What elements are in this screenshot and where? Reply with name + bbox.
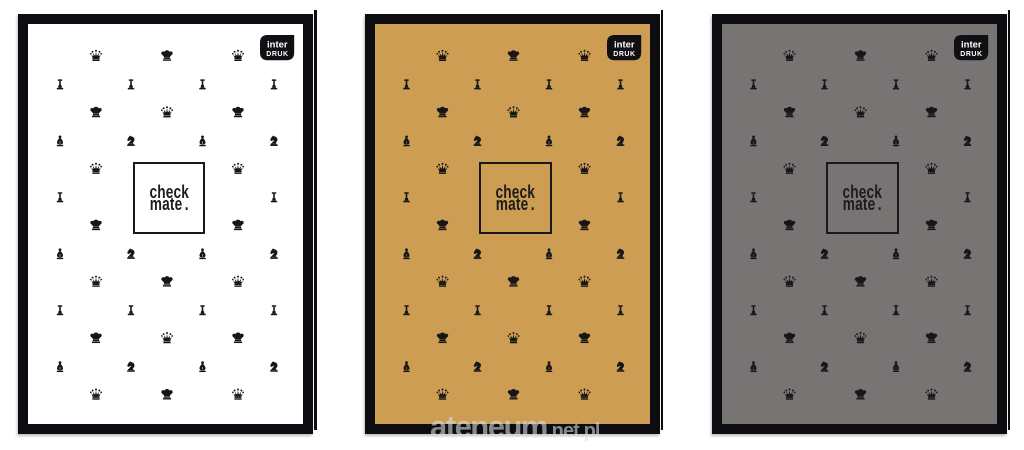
svg-text:DRUK: DRUK xyxy=(960,51,982,58)
svg-text:inter: inter xyxy=(267,40,288,51)
svg-text:inter: inter xyxy=(961,40,982,51)
svg-text:DRUK: DRUK xyxy=(613,51,635,58)
svg-text:inter: inter xyxy=(614,40,635,51)
svg-text:DRUK: DRUK xyxy=(266,51,288,58)
